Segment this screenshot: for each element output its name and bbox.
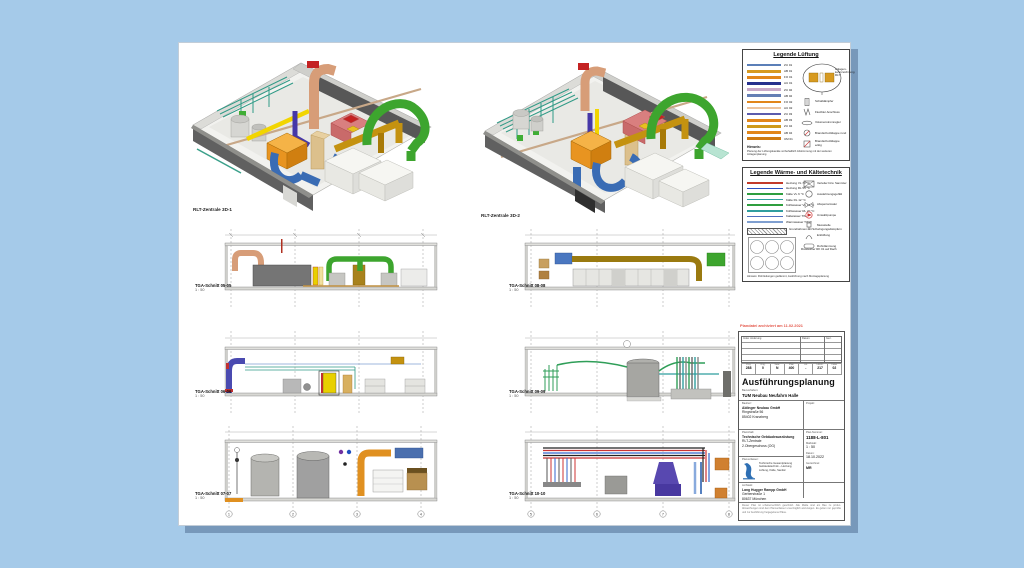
shutoff-valve-icon — [803, 201, 815, 209]
revision-table: Index Änderung Datum Gez. — [741, 336, 842, 363]
column-dark — [723, 371, 731, 397]
grid-bubbles: 1 2 3 4 — [226, 511, 424, 517]
tank-1 — [251, 458, 279, 496]
plan-date: 18.10.2022 — [806, 455, 824, 459]
duct-color-swatch — [747, 131, 781, 134]
company-logo — [742, 462, 756, 480]
section3-caption: TGA-Schnitt 07-07 1 : 50 — [195, 491, 255, 501]
grid-bubbles: 5 6 7 8 — [528, 511, 732, 517]
svg-text:6: 6 — [596, 512, 598, 516]
section1-caption: TGA-Schnitt 05-05 1 : 50 — [195, 283, 255, 293]
section2-caption: TGA-Schnitt 06-06 1 : 50 — [195, 389, 255, 399]
legend-ventilation: Legende Lüftung ZU 01 AB 01 FO 01 AU 01 … — [742, 49, 850, 161]
plan-sheet[interactable]: RLT-Zentrale 3D-1 — [178, 42, 851, 526]
ahu-gray — [253, 265, 311, 286]
volume-controller-icon — [801, 119, 813, 127]
duct-color-swatch — [747, 107, 781, 110]
silencer-icon — [801, 98, 813, 106]
title-block: Index Änderung Datum Gez. Proj.288 Orig.… — [738, 331, 845, 521]
fan-red — [578, 63, 589, 70]
iso-view-2 — [477, 51, 729, 213]
pump — [304, 384, 311, 391]
author-note: Technische Gesamtplanung Gebäudetechnik … — [759, 462, 799, 472]
distributor-icon — [803, 180, 815, 188]
fire-damper-square-icon — [801, 140, 813, 148]
disclaimer-text: Dieser Plan ist urheberrechtlich geschüt… — [742, 504, 841, 514]
box-green — [707, 253, 725, 266]
pipe-color-swatch — [747, 221, 783, 223]
tank — [627, 363, 659, 397]
svg-text:4: 4 — [420, 512, 422, 516]
section-view-3: 1 2 3 4 — [195, 426, 447, 520]
section-view-6: 5 6 7 8 — [509, 426, 743, 520]
pipe-color-swatch — [747, 216, 783, 218]
svg-text:8: 8 — [728, 512, 730, 516]
svg-text:2: 2 — [292, 512, 294, 516]
plan-number: 1188-L-801 — [806, 435, 828, 440]
duct-color-swatch — [747, 64, 781, 67]
section5-caption: TGA-Schnitt 09-09 1 : 50 — [509, 389, 569, 399]
duct-beige — [311, 135, 324, 169]
section-view-1 — [195, 229, 447, 307]
chiller-symbol — [748, 237, 796, 273]
section-view-4 — [509, 229, 743, 307]
flex-connector-icon — [801, 108, 813, 116]
section-view-5 — [509, 331, 743, 415]
architect-address: Lang Hugger Rampp GmbH Gerberstraße 1 80… — [742, 488, 800, 501]
legend-hvac-title: Legende Wärme- und Kältetechnik — [743, 168, 849, 176]
plan-code-strip: Proj.288 Orig.0 Gew.N Plan400 Art- Lfd-N… — [741, 363, 842, 375]
expansion-vessel-icon — [803, 190, 815, 198]
section-view-2 — [195, 331, 447, 415]
client-address: Aldinger Neubau GmbH Ringstraße 56 85402… — [742, 406, 800, 419]
plan-scale: 1 : 50 — [806, 445, 815, 449]
legend-hvac: Legende Wärme- und Kältetechnik Heizung … — [742, 167, 850, 282]
section4-caption: TGA-Schnitt 08-08 1 : 50 — [509, 283, 569, 293]
duct-color-swatch — [747, 137, 781, 140]
unit-yellow — [323, 373, 336, 393]
ahu-white — [325, 148, 413, 201]
svg-text:3: 3 — [356, 512, 358, 516]
duct-color-swatch — [747, 82, 781, 85]
pipe-color-swatch — [747, 193, 783, 195]
vent-icon — [803, 232, 815, 240]
pipe-color-swatch — [747, 199, 783, 201]
duct-color-swatch — [747, 76, 781, 79]
box-blue — [395, 448, 423, 458]
foundation-symbol — [747, 228, 787, 235]
duct-color-swatch — [747, 125, 781, 128]
duct-color-swatch — [747, 101, 781, 104]
archive-note: Plandatei archiviert am 11.02.2021 — [740, 323, 803, 328]
manifold — [547, 458, 575, 482]
pump-icon — [803, 211, 815, 219]
funnel-purple — [653, 462, 679, 484]
drawn-by: MR — [806, 466, 812, 470]
pipe-color-swatch — [747, 188, 783, 190]
project-name: TUM Neubau Neufahrn Halle — [742, 393, 798, 398]
ahu-white — [625, 153, 709, 207]
duct-color-swatch — [747, 113, 781, 116]
svg-text:5: 5 — [530, 512, 532, 516]
svg-text:7: 7 — [662, 512, 664, 516]
iso2-caption: RLT-Zentrale 3D-2 — [481, 213, 520, 218]
duct-color-swatch — [747, 70, 781, 73]
pipe-color-swatch — [747, 182, 783, 184]
tank-2 — [297, 456, 329, 498]
pipe-color-swatch — [747, 204, 783, 206]
pipes-green — [543, 365, 559, 391]
box-blue — [555, 253, 572, 264]
duct-color-swatch — [747, 119, 781, 122]
iso-view-1 — [183, 49, 437, 211]
duct-color-swatch — [747, 94, 781, 97]
fire-damper-round-icon — [801, 129, 813, 137]
desktop-background: RLT-Zentrale 3D-1 — [0, 0, 1024, 568]
section6-caption: TGA-Schnitt 10-10 1 : 50 — [509, 491, 569, 501]
plan-phase-title: Ausführungsplanung — [742, 377, 835, 387]
fan-red — [307, 61, 319, 68]
iso1-caption: RLT-Zentrale 3D-1 — [193, 207, 232, 212]
pipe-color-swatch — [747, 210, 783, 212]
duct-color-swatch — [747, 88, 781, 91]
plan-content: Technische Gebäudeausrüstung RLT-Zentral… — [742, 435, 800, 448]
svg-text:1: 1 — [228, 512, 230, 516]
legend-ventilation-title: Legende Lüftung — [743, 50, 849, 58]
